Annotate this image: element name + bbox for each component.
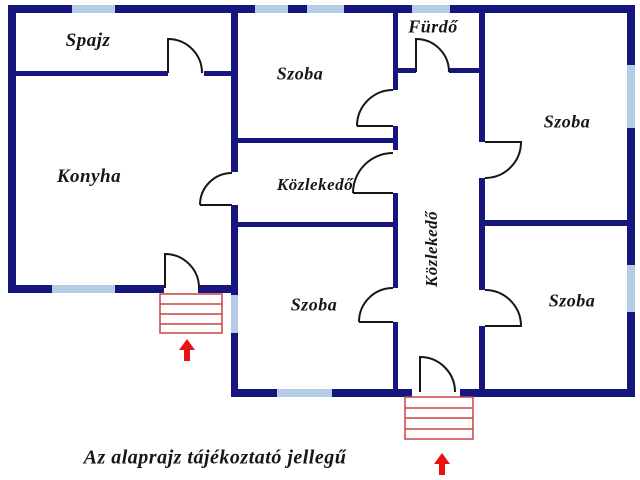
room-label-konyha: Konyha [57,166,121,188]
room-label-szoba-right-top: Szoba [544,112,591,133]
staircase-entrance [405,397,473,439]
room-label-kozlekedo-middle: Közlekedő [277,175,353,195]
floorplan: Spajz Szoba Fürdő Szoba Konyha Közlekedő… [0,0,640,480]
disclaimer-text: Az alaprajz tájékoztató jellegű [84,447,347,470]
door-swing-room-top [357,90,393,126]
entrance-arrow-icon-left [179,339,195,361]
room-label-furdo: Fürdő [408,17,458,38]
room-label-kozlekedo-vertical: Közlekedő [422,211,442,287]
room-label-szoba-bottom: Szoba [291,295,338,316]
room-label-spajz: Spajz [66,30,111,52]
door-swing-pantry [168,39,202,73]
door-swing-hall-corridor [353,153,393,193]
staircase-kitchen [160,294,222,333]
room-label-szoba-right-bottom: Szoba [549,291,596,312]
room-label-szoba-top: Szoba [277,64,324,85]
door-swing-entrance [420,357,455,392]
door-swing-kitchen-exit [165,254,199,288]
door-swing-bathroom [416,39,449,72]
door-swing-room-bottom [359,288,393,322]
entrance-arrow-icon-right [434,453,450,475]
door-swing-room-right-bottom [485,290,521,326]
door-swing-kitchen-hall [200,173,232,205]
door-swing-room-right-top [485,142,521,178]
